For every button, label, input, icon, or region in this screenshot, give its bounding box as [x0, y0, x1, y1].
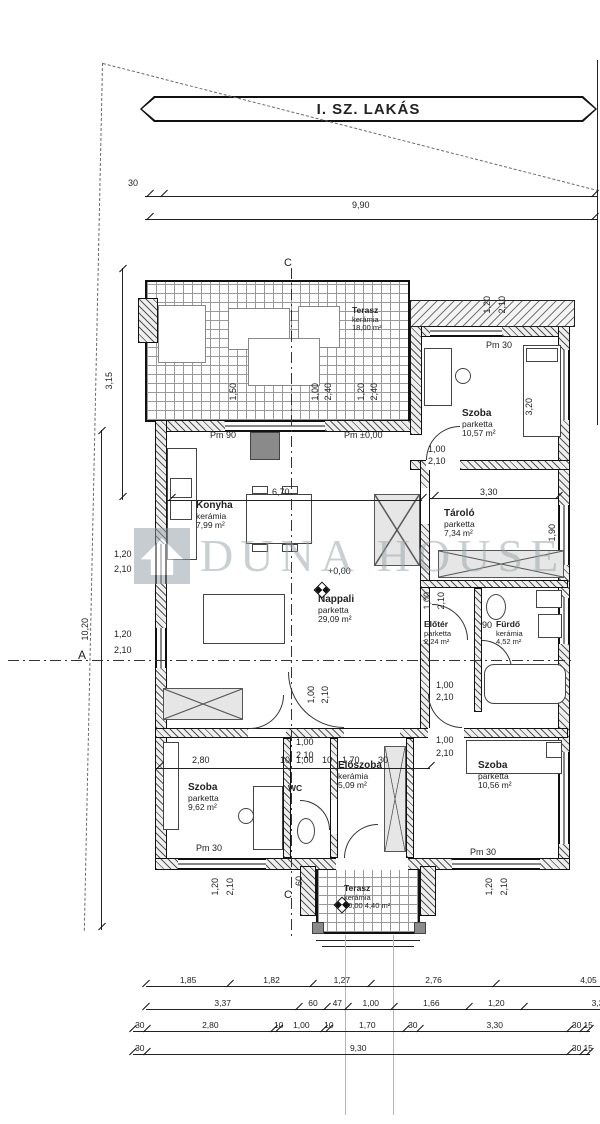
dim-label-door-nappali-w: 1,00 — [306, 686, 316, 704]
room-label-konyha: Konyhakerámia7,99 m² — [196, 500, 233, 531]
tick-mark — [98, 923, 106, 931]
dim-label-section-c-bottom: C — [284, 889, 292, 901]
room-label-text: ±0,00 4,40 m² — [344, 902, 390, 911]
dim-label-door-nappali-h: 2,10 — [320, 686, 330, 704]
dimension-line — [155, 768, 430, 769]
dim-label-chain-30: 30 — [378, 755, 388, 765]
dim-label-win-br-h: 2,10 — [499, 878, 509, 896]
room-label-text: 7,34 m² — [444, 529, 475, 539]
wall — [474, 588, 482, 712]
dim-label-win-br-w: 1,20 — [484, 878, 494, 896]
dim-label-terasz-top-d2b: 2,40 — [323, 383, 333, 401]
dim-label-chain-10b: 10 — [322, 755, 332, 765]
room-label-text: 7,99 m² — [196, 521, 233, 531]
terrace-lounger — [248, 338, 320, 386]
dim-label-dim-60: 60 — [294, 876, 304, 886]
wardrobe — [163, 742, 179, 830]
room-label-text: 9,62 m² — [188, 803, 219, 813]
dimension-line — [430, 498, 558, 499]
window — [430, 326, 502, 336]
dim-label-chain-10a: 10 — [280, 755, 290, 765]
dim-label-door-terasz-h: 2,10 — [225, 878, 235, 896]
dim-label-door-eloter-w: 1,00 — [422, 592, 432, 610]
dim-label-terasz-top-d3b: 2,40 — [369, 383, 379, 401]
room-label-terasz-bottom: Teraszkerámia±0,00 4,40 m² — [344, 884, 390, 911]
tick-mark — [119, 265, 127, 273]
tick-mark — [427, 762, 435, 770]
chair — [252, 544, 268, 552]
dim-label-chain-1-70: 1,70 — [342, 755, 360, 765]
dimension-line — [133, 1054, 590, 1055]
dimension-row-row-4: 309,303015 — [133, 1054, 590, 1068]
dim-label-door-tr-w: 1,00 — [428, 444, 446, 454]
bathtub — [484, 664, 566, 704]
window — [225, 421, 325, 431]
room-label-text: Konyha — [196, 500, 233, 512]
dimension-line — [122, 268, 123, 500]
door-opening — [336, 858, 408, 870]
room-label-furdo: Fürdőkerámia4,52 m² — [496, 620, 523, 647]
terrace-pillar — [312, 922, 324, 934]
dim-label-dim-1-90: 1,90 — [547, 524, 557, 542]
room-label-tarolo: Tárolóparketta7,34 m² — [444, 508, 475, 539]
chair — [282, 544, 298, 552]
dim-label-door-eloter-h: 2,10 — [436, 592, 446, 610]
dim-label-section-c-top: C — [284, 257, 292, 269]
pillow — [526, 348, 558, 362]
dimension-value: 1,00 — [279, 1020, 325, 1030]
door-arc — [288, 672, 344, 728]
dimension-line — [133, 1031, 590, 1032]
wall — [420, 580, 568, 588]
dim-label-dim-3-30: 3,30 — [480, 487, 498, 497]
room-label-text: WC — [288, 784, 302, 794]
boundary-line — [103, 63, 599, 191]
roof-edge — [410, 300, 575, 327]
window — [178, 859, 266, 869]
dim-label-level-nappali: +0,00 — [328, 566, 351, 576]
dimension-line — [146, 986, 600, 987]
washbasin — [536, 590, 562, 608]
dim-label-chain-1-00: 1,00 — [296, 755, 314, 765]
dim-label-win-tr-w: 1,20 — [482, 296, 492, 314]
dim-label-win-left-1-w: 1,20 — [114, 549, 132, 559]
dimension-value: 1,85 — [146, 975, 230, 985]
dim-label-parapet-konyha: Pm 90 — [210, 430, 236, 440]
dimension-line — [145, 196, 597, 197]
dim-label-terasz-top-d1: 1,50 — [228, 383, 238, 401]
room-label-text: 4,52 m² — [496, 638, 523, 647]
room-label-eloter: Előtérparketta2,24 m² — [424, 620, 451, 647]
terrace-table — [158, 305, 206, 363]
chair — [238, 808, 254, 824]
dimension-value: 1,27 — [313, 975, 371, 985]
chair — [455, 368, 471, 384]
dim-label-door-szoba-br-h: 2,10 — [436, 748, 454, 758]
door-opening — [344, 729, 400, 737]
dim-label-height-left-upper: 3,15 — [104, 372, 114, 390]
door-opening — [331, 800, 337, 834]
dim-label-door-szoba-bl-w: 1,00 — [296, 737, 314, 747]
room-label-wc: WC — [288, 784, 302, 794]
dim-label-win-left-1-h: 2,10 — [114, 564, 132, 574]
dimension-value: 47 — [327, 998, 348, 1008]
room-label-text: Szoba — [478, 760, 512, 772]
page-title: I. SZ. LAKÁS — [142, 98, 595, 120]
dim-label-terasz-top-d3a: 1,20 — [356, 383, 366, 401]
dimension-value: 1,66 — [394, 998, 470, 1008]
toilet — [486, 594, 506, 620]
dim-label-dim-6-70: 6,70 — [272, 487, 290, 497]
dimension-line — [597, 60, 598, 425]
dimension-value: 1,20 — [469, 998, 524, 1008]
dimension-value: 3,35 — [524, 998, 600, 1008]
tick-mark — [119, 493, 127, 501]
dimension-value: 4,05 — [496, 975, 600, 985]
dim-label-win-left-2-h: 2,10 — [114, 645, 132, 655]
chair — [252, 486, 268, 494]
dim-label-win-tr-h: 2,10 — [497, 296, 507, 314]
dim-label-width-top: 9,90 — [352, 200, 370, 210]
dim-label-terasz-top-d2a: 1,00 — [310, 383, 320, 401]
wall — [420, 866, 436, 916]
dim-label-height-left-lower: 10,20 — [80, 618, 90, 641]
sink — [170, 500, 192, 520]
stove — [250, 432, 280, 460]
dim-label-parapet-szoba-bl: Pm 30 — [196, 843, 222, 853]
dim-label-offset-top: 30 — [128, 178, 138, 188]
dimension-line — [322, 946, 414, 947]
dining-table — [246, 494, 312, 544]
dim-label-parapet-szoba-tr: Pm 30 — [486, 340, 512, 350]
dim-label-section-a: A — [78, 648, 86, 662]
desk — [253, 786, 283, 850]
wardrobe-dashed — [374, 494, 420, 566]
dim-label-chain-2-80: 2,80 — [192, 755, 210, 765]
dim-label-door-terasz-w: 1,20 — [210, 878, 220, 896]
terrace-pillar — [414, 922, 426, 934]
dimension-value: 3,30 — [420, 1020, 570, 1030]
room-label-text: 5,09 m² — [338, 781, 382, 791]
dimension-value: 9,30 — [147, 1043, 570, 1053]
window — [452, 859, 540, 869]
dimension-value: 60 — [299, 998, 326, 1008]
room-label-text: Szoba — [462, 408, 496, 420]
toilet — [297, 818, 315, 844]
wardrobe-dashed — [438, 550, 564, 578]
room-label-text: 10,56 m² — [478, 781, 512, 791]
room-label-szoba-bl: Szobaparketta9,62 m² — [188, 782, 219, 813]
dimension-value: 2,76 — [371, 975, 497, 985]
door-opening — [248, 729, 286, 737]
room-label-text: Szoba — [188, 782, 219, 794]
dimension-value: 3,37 — [146, 998, 299, 1008]
title-banner: I. SZ. LAKÁS — [140, 96, 597, 122]
dimension-line — [316, 940, 420, 941]
dim-label-door-szoba-br-w: 1,00 — [436, 735, 454, 745]
door-arc — [250, 695, 284, 729]
dimension-value: 1,00 — [348, 998, 394, 1008]
dimension-line — [101, 430, 102, 930]
wall — [300, 866, 316, 916]
sofa — [203, 594, 285, 644]
floorplan-canvas: I. SZ. LAKÁS DUNA HOUSE Teraszkerámia18,… — [0, 0, 600, 1124]
tick-mark — [98, 427, 106, 435]
wardrobe-dashed — [163, 688, 243, 720]
washing-machine — [538, 614, 562, 638]
dim-label-door-furdo-h: 2,10 — [436, 692, 454, 702]
room-label-text: 2,24 m² — [424, 638, 451, 647]
room-label-szoba-tr: Szobaparketta10,57 m² — [462, 408, 496, 439]
dimension-line — [146, 1009, 600, 1010]
room-label-nappali: Nappaliparketta29,09 m² — [318, 594, 354, 625]
door-arc — [426, 426, 460, 460]
window — [156, 628, 166, 668]
dim-label-dim-3-20: 3,20 — [524, 398, 534, 416]
room-label-text: 29,09 m² — [318, 615, 354, 625]
dim-label-parapet-terasz-door: Pm ±0,00 — [344, 430, 382, 440]
window — [156, 544, 166, 584]
wall — [410, 325, 422, 435]
dim-label-parapet-szoba-br: Pm 30 — [470, 847, 496, 857]
room-label-szoba-br: Szobaparketta10,56 m² — [478, 760, 512, 791]
dimension-value: 1,70 — [329, 1020, 406, 1030]
dim-label-door-furdo-w: 1,00 — [436, 680, 454, 690]
room-label-terasz-top: Teraszkerámia18,00 m² — [352, 306, 382, 333]
room-label-text: 18,00 m² — [352, 324, 382, 333]
section-line-c — [291, 268, 292, 936]
wall — [406, 738, 414, 858]
dimension-value: 1,82 — [230, 975, 313, 985]
room-label-text: 10,57 m² — [462, 429, 496, 439]
dim-label-win-left-2-w: 1,20 — [114, 629, 132, 639]
room-label-text: Tároló — [444, 508, 475, 520]
dimension-value: 2,80 — [147, 1020, 274, 1030]
dim-label-door-tr-h: 2,10 — [428, 456, 446, 466]
wall — [138, 298, 158, 343]
dim-label-door-furdo-width: 90 — [482, 620, 492, 630]
nightstand — [546, 742, 562, 758]
door-arc — [344, 824, 378, 858]
desk — [424, 348, 452, 406]
dimension-line — [145, 219, 597, 220]
